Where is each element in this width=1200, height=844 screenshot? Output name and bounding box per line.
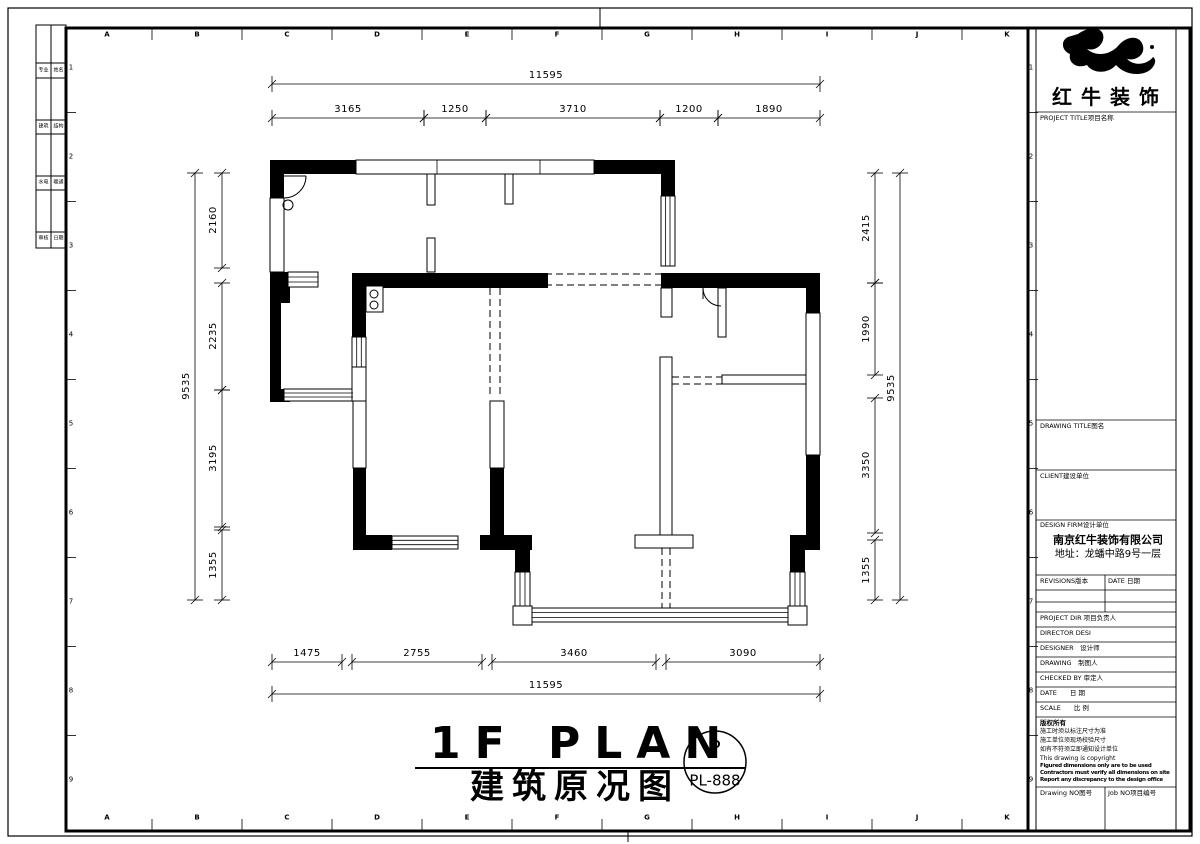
dim-left-segment: 2160 — [209, 206, 219, 233]
dim-top-segment: 3165 — [334, 105, 361, 115]
grid-ticks — [66, 28, 1038, 831]
copyright-note-en-3: Report any discrepancy to the design off… — [1040, 778, 1163, 784]
dim-bottom-segment: 1475 — [293, 649, 320, 659]
grid-letter-bottom-D: D — [374, 815, 380, 822]
drawing-title-en: 1F PLAN — [430, 722, 735, 766]
copyright-note-1: 施工时须以标注尺寸为准 — [1040, 729, 1106, 735]
field-drawing-title: DRAWING TITLE图名 — [1040, 423, 1104, 430]
grid-number-right-6: 6 — [1029, 510, 1033, 517]
dim-right-segment: 3350 — [862, 451, 872, 478]
signoff-cell: 暖通 — [53, 181, 63, 186]
grid-number-left-5: 5 — [69, 421, 73, 428]
dim-bottom-segment: 2755 — [403, 649, 430, 659]
walls-thin-and-windows — [270, 160, 820, 625]
copyright-note-3: 如有不符须立即通知设计单位 — [1040, 747, 1118, 753]
company-logo-text: 红牛装饰 — [1052, 87, 1168, 107]
grid-number-left-4: 4 — [69, 332, 73, 339]
copyright-note-2: 施工单位须现场校验尺寸 — [1040, 738, 1106, 744]
fixtures — [283, 176, 721, 309]
grid-number-right-7: 7 — [1029, 599, 1033, 606]
grid-letter-bottom-H: H — [734, 815, 740, 822]
grid-number-right-2: 2 — [1029, 154, 1033, 161]
field-design-firm: DESIGN FIRM设计单位 — [1040, 522, 1109, 529]
grid-letter-bottom-A: A — [104, 815, 109, 822]
signoff-cell: 水电 — [38, 181, 48, 186]
grid-number-left-1: 1 — [69, 65, 73, 72]
grid-letter-bottom-B: B — [194, 815, 199, 822]
signoff-cell: 结构 — [53, 125, 63, 130]
grid-letter-bottom-F: F — [555, 815, 560, 822]
grid-letter-top-K: K — [1004, 32, 1009, 39]
grid-letter-top-H: H — [734, 32, 740, 39]
grid-letter-top-J: J — [916, 32, 919, 39]
grid-number-right-8: 8 — [1029, 688, 1033, 695]
signoff-cell: 姓名 — [53, 68, 63, 73]
signoff-strip — [36, 25, 66, 248]
copyright-note-4: This drawing is copyright — [1040, 756, 1115, 762]
grid-letter-bottom-C: C — [284, 815, 289, 822]
grid-letter-bottom-K: K — [1004, 815, 1009, 822]
signoff-cell: 专业 — [38, 68, 48, 73]
field-project-title: PROJECT TITLE项目名称 — [1040, 115, 1114, 122]
grid-number-right-3: 3 — [1029, 243, 1033, 250]
grid-number-right-5: 5 — [1029, 421, 1033, 428]
field-client: CLIENT建设单位 — [1040, 473, 1089, 480]
dim-right-segment: 1355 — [862, 556, 872, 583]
dim-right-segment: 2415 — [862, 214, 872, 241]
cad-sheet: 1F PLAN 建筑原况图 P PL-888 红牛装饰 PROJECT TITL… — [0, 0, 1200, 844]
dim-left-overall: 9535 — [182, 372, 192, 399]
copyright-note-en-1: Figured dimensions only are to be used — [1040, 764, 1152, 770]
signoff-cell: 审核 — [38, 237, 48, 242]
grid-letter-top-I: I — [826, 32, 829, 39]
grid-number-right-4: 4 — [1029, 332, 1033, 339]
field-designer: DESIGNER 设计师 — [1040, 645, 1100, 652]
grid-number-right-9: 9 — [1029, 777, 1033, 784]
page-badge-code: PL-888 — [689, 774, 740, 789]
grid-letter-bottom-G: G — [644, 815, 650, 822]
dim-left-segment: 1355 — [209, 551, 219, 578]
field-date: DATE 日 期 — [1040, 690, 1085, 697]
dim-bottom-overall: 11595 — [529, 681, 563, 691]
field-scale: SCALE 比 例 — [1040, 705, 1089, 712]
dim-bottom-segment: 3460 — [560, 649, 587, 659]
grid-number-left-3: 3 — [69, 243, 73, 250]
sheet-frame — [8, 8, 1192, 842]
grid-number-left-2: 2 — [69, 154, 73, 161]
field-revision-date: DATE 日期 — [1108, 578, 1140, 585]
signoff-cell: 建筑 — [38, 125, 48, 130]
copyright-note-en-2: Contractors must verify all dimensions o… — [1040, 771, 1170, 777]
field-revisions: REVISIONS版本 — [1040, 578, 1088, 585]
grid-number-left-8: 8 — [69, 688, 73, 695]
dim-top-segment: 3710 — [559, 105, 586, 115]
dim-left-segment: 2235 — [209, 322, 219, 349]
grid-number-right-1: 1 — [1029, 65, 1033, 72]
dim-top-segment: 1200 — [675, 105, 702, 115]
field-director: DIRECTOR DESI — [1040, 630, 1091, 637]
signoff-cell: 日期 — [53, 237, 63, 242]
grid-letter-top-B: B — [194, 32, 199, 39]
grid-letter-top-A: A — [104, 32, 109, 39]
grid-letter-bottom-E: E — [465, 815, 470, 822]
dim-left-segment: 3195 — [209, 444, 219, 471]
copyright-title: 版权所有 — [1040, 720, 1066, 727]
grid-letter-top-D: D — [374, 32, 380, 39]
dim-top-segment: 1250 — [441, 105, 468, 115]
dim-top-segment: 1890 — [755, 105, 782, 115]
design-firm-address: 地址：龙蟠中路9号一层 — [1055, 550, 1161, 560]
grid-number-left-9: 9 — [69, 777, 73, 784]
dim-right-overall: 9535 — [887, 374, 897, 401]
grid-letter-bottom-J: J — [916, 815, 919, 822]
page-badge-letter: P — [709, 739, 720, 758]
grid-letter-top-C: C — [284, 32, 289, 39]
field-drawing-no: Drawing NO图号 — [1040, 790, 1092, 797]
grid-letter-top-F: F — [555, 32, 560, 39]
grid-letter-top-E: E — [465, 32, 470, 39]
logo-dot — [1150, 45, 1154, 49]
field-drawing-by: DRAWING 制图人 — [1040, 660, 1098, 667]
dim-right-segment: 1990 — [862, 315, 872, 342]
field-project-dir: PROJECT DIR 项目负责人 — [1040, 615, 1116, 622]
design-firm-name: 南京红牛装饰有限公司 — [1053, 535, 1163, 546]
field-job-no: Job NO项目编号 — [1108, 790, 1156, 797]
grid-letter-bottom-I: I — [826, 815, 829, 822]
rednote-bull-logo — [1063, 28, 1155, 74]
grid-number-left-6: 6 — [69, 510, 73, 517]
grid-number-left-7: 7 — [69, 599, 73, 606]
drawing-title-zh: 建筑原况图 — [470, 770, 680, 804]
grid-letter-top-G: G — [644, 32, 650, 39]
dim-bottom-segment: 3090 — [729, 649, 756, 659]
field-checked-by: CHECKED BY 审定人 — [1040, 675, 1103, 682]
dim-top-overall: 11595 — [529, 71, 563, 81]
